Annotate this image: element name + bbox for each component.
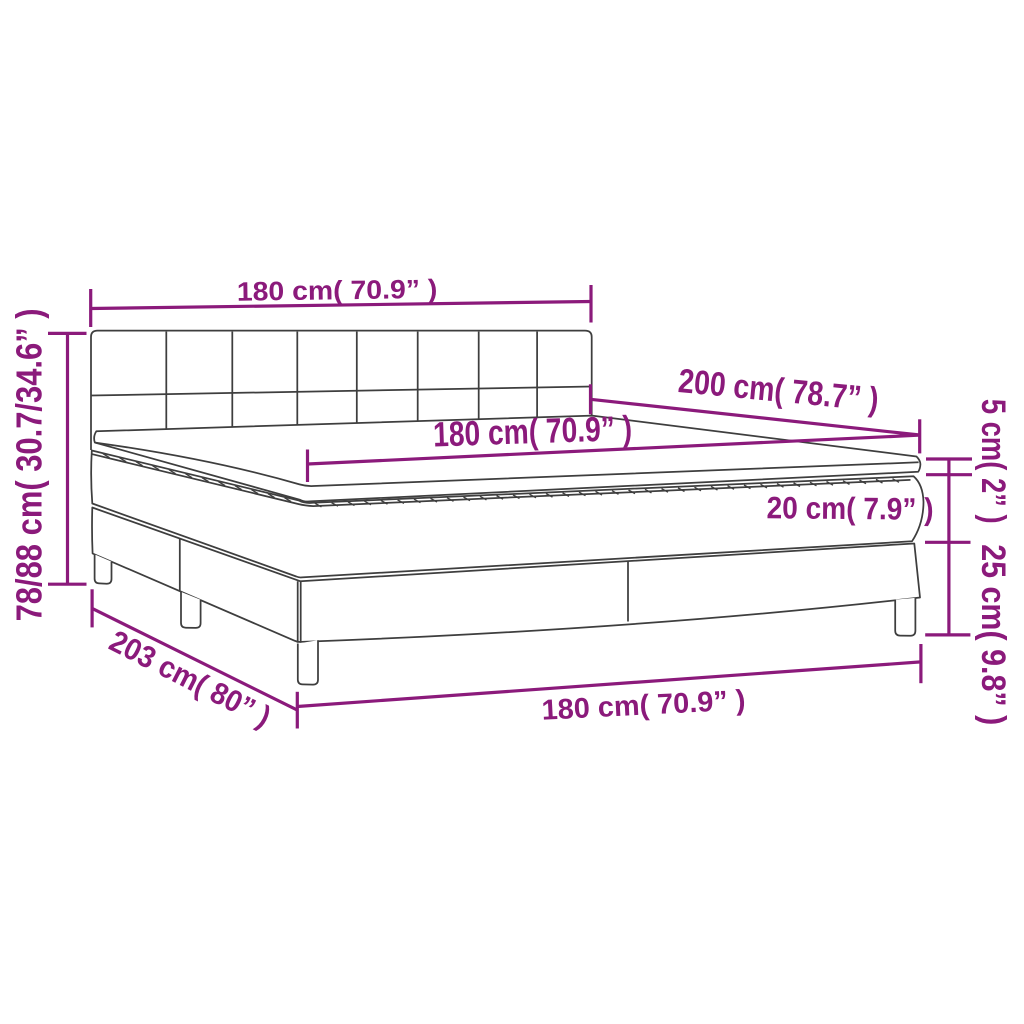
svg-text:5 cm( 2” ): 5 cm( 2” ) (974, 399, 1012, 524)
svg-text:180 cm( 70.9” ): 180 cm( 70.9” ) (541, 684, 746, 726)
svg-text:78/88 cm( 30.7/34.6” ): 78/88 cm( 30.7/34.6” ) (9, 308, 50, 621)
svg-text:180 cm( 70.9” ): 180 cm( 70.9” ) (433, 409, 633, 455)
svg-text:180 cm( 70.9” ): 180 cm( 70.9” ) (237, 274, 438, 307)
svg-text:203 cm( 80” ): 203 cm( 80” ) (104, 624, 276, 734)
svg-text:20 cm( 7.9” ): 20 cm( 7.9” ) (766, 490, 933, 526)
svg-text:25 cm( 9.8” ): 25 cm( 9.8” ) (974, 544, 1012, 725)
